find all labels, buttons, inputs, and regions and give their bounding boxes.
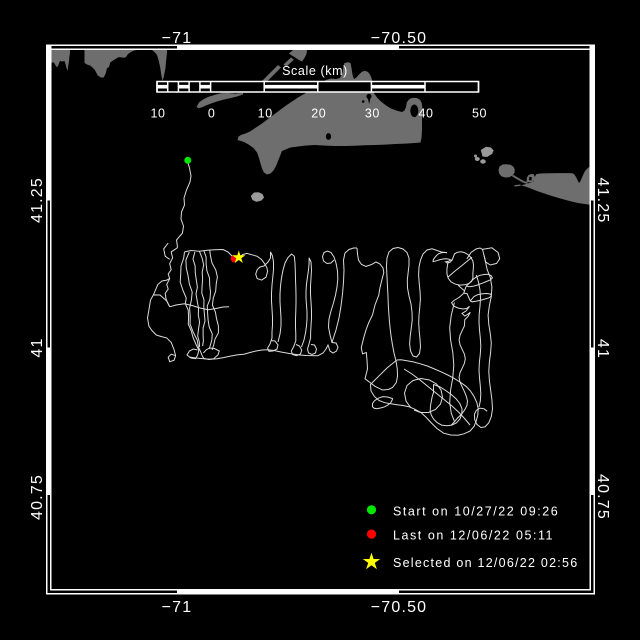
svg-text:40.75: 40.75 (29, 474, 46, 520)
svg-text:41: 41 (29, 337, 46, 357)
svg-text:10: 10 (150, 107, 165, 121)
svg-text:−71: −71 (162, 599, 193, 616)
svg-text:10: 10 (258, 107, 273, 121)
svg-text:Scale (km): Scale (km) (282, 64, 348, 78)
svg-text:20: 20 (311, 107, 326, 121)
svg-text:Start on 10/27/22 09:26: Start on 10/27/22 09:26 (393, 504, 559, 518)
svg-text:50: 50 (472, 107, 487, 121)
svg-text:Selected on 12/06/22 02:56: Selected on 12/06/22 02:56 (393, 556, 578, 570)
svg-text:−70.50: −70.50 (371, 30, 428, 47)
svg-text:40.75: 40.75 (594, 474, 611, 520)
svg-text:40: 40 (418, 107, 433, 121)
svg-text:−71: −71 (162, 30, 193, 47)
svg-text:41: 41 (594, 339, 611, 359)
svg-text:30: 30 (365, 107, 380, 121)
svg-text:0: 0 (208, 107, 216, 121)
svg-text:41.25: 41.25 (594, 177, 611, 223)
svg-text:−70.50: −70.50 (371, 599, 428, 616)
svg-text:Last on 12/06/22 05:11: Last on 12/06/22 05:11 (393, 529, 554, 543)
svg-text:41.25: 41.25 (29, 177, 46, 223)
